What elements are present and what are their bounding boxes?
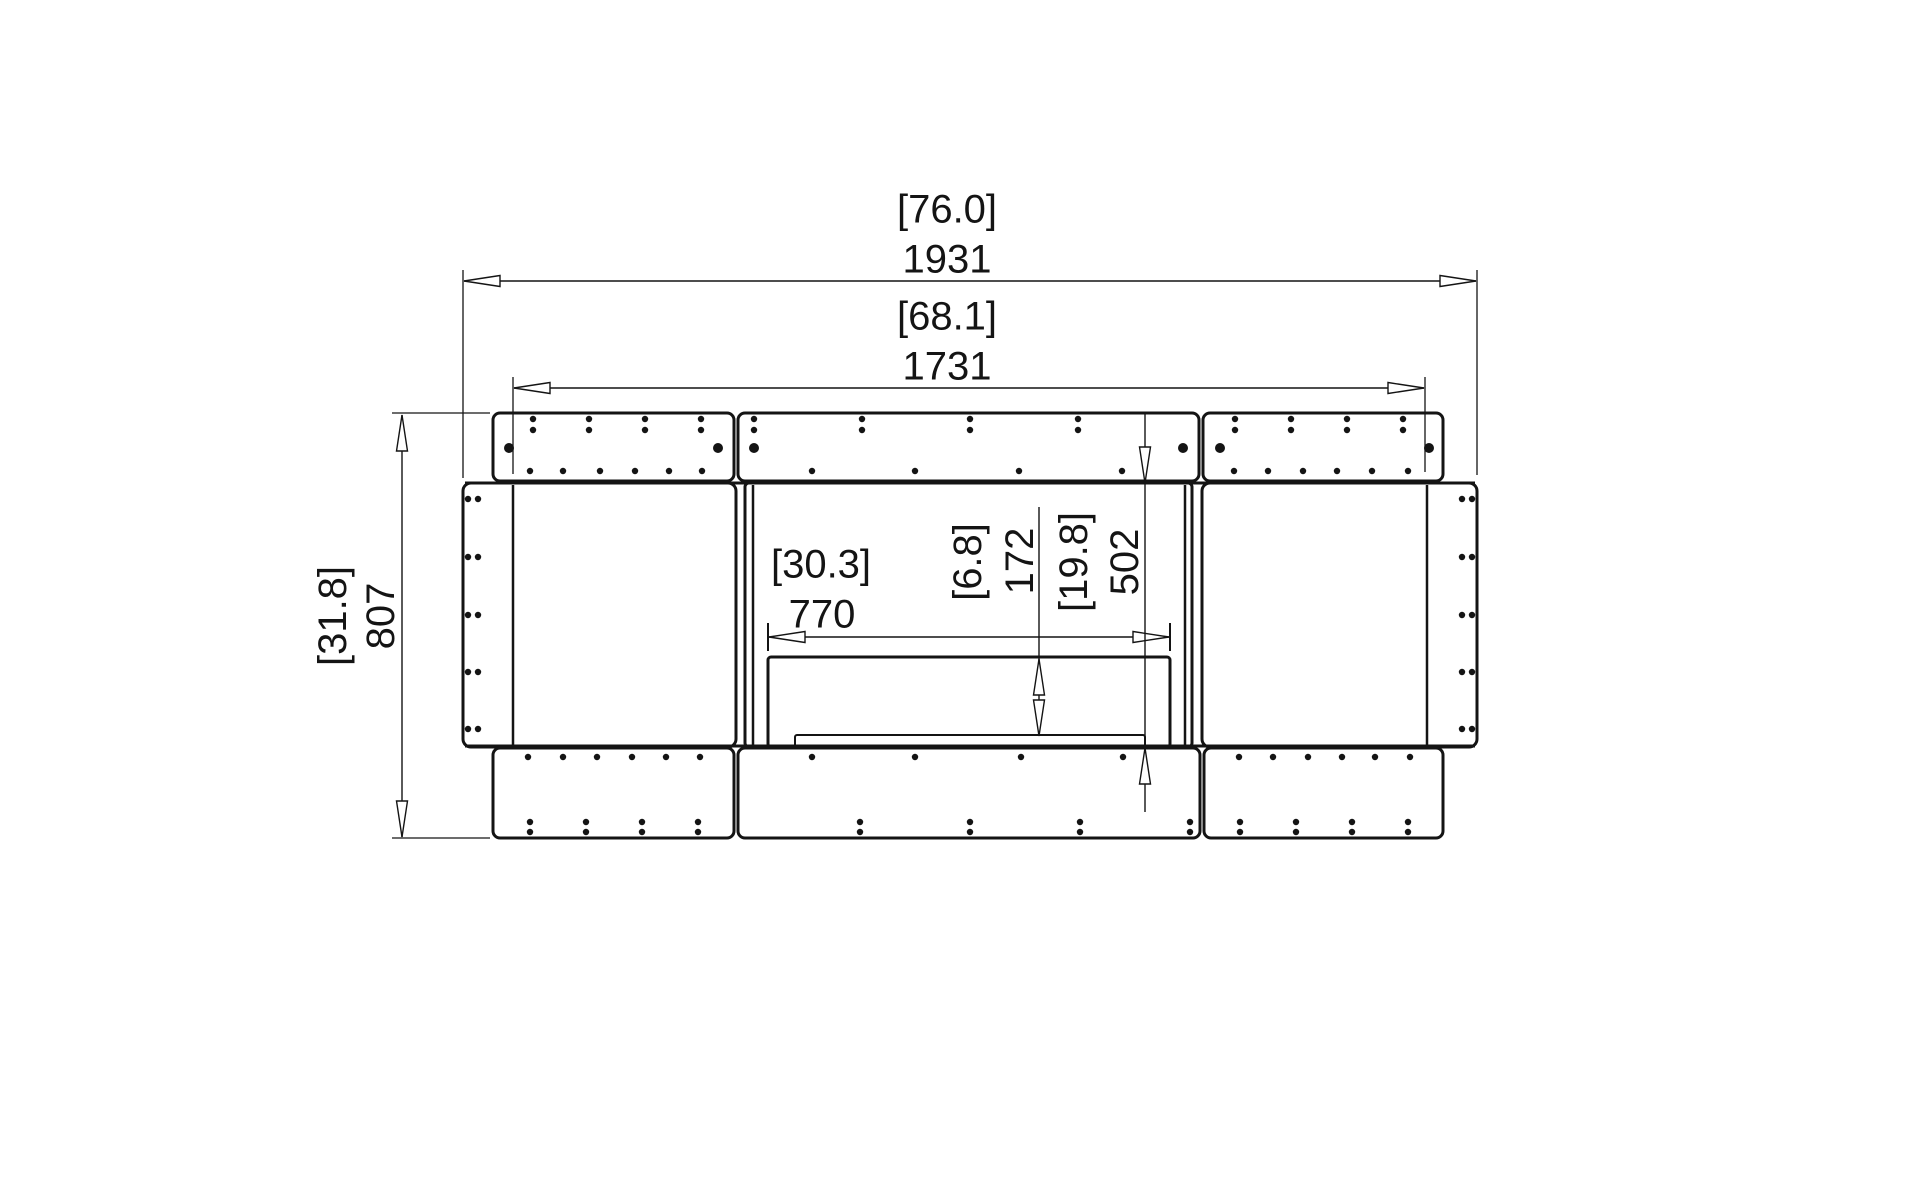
top-strip-bottom-row-dot (1119, 468, 1125, 474)
top-strip-screw-pairs-dot (586, 427, 592, 433)
top-panel-center (738, 413, 1199, 481)
base-strip-screw-pairs-dot (583, 829, 589, 835)
top-strip-bottom-row-dot (666, 468, 672, 474)
left-stile-screw-pairs-dot (465, 554, 471, 560)
burner-box (768, 657, 1170, 747)
base-strip-top-row-dot (1236, 754, 1242, 760)
base-strip-screw-pairs-dot (1077, 819, 1083, 825)
dim-overall-width-arrow-right-icon (1440, 276, 1476, 287)
top-strip-bottom-row-dot (1231, 468, 1237, 474)
top-strip-screw-pairs-dot (642, 416, 648, 422)
base-strip-screw-pairs-dot (639, 829, 645, 835)
left-stile-screw-pairs-dot (475, 612, 481, 618)
base-strip-screw-pairs-dot (967, 819, 973, 825)
base-strip-top-row-dot (629, 754, 635, 760)
base-strip-top-row-dot (1270, 754, 1276, 760)
top-strip-screw-pairs-dot (859, 416, 865, 422)
top-strip-screw-pairs-dot (698, 416, 704, 422)
top-strip-large-screws-dot (1178, 443, 1188, 453)
base-strip-screw-pairs-dot (1187, 829, 1193, 835)
left-stile-screw-pairs-dot (475, 554, 481, 560)
right-stile-screw-pairs-dot (1469, 496, 1475, 502)
base-strip-screw-pairs-dot (695, 819, 701, 825)
base-strip-screw-pairs-dot (1293, 819, 1299, 825)
right-stile-screw-pairs-dot (1469, 726, 1475, 732)
base-strip-screw-pairs-dot (1237, 819, 1243, 825)
base-strip-top-row-dot (560, 754, 566, 760)
dim-overall-height-arrow-down-icon (397, 801, 408, 837)
top-strip-screw-pairs-dot (1232, 427, 1238, 433)
top-strip-screw-pairs-dot (698, 427, 704, 433)
base-strip-screw-pairs-dot (1349, 829, 1355, 835)
base-strip-screw-pairs-dot (695, 829, 701, 835)
cabinet-left (463, 483, 736, 747)
base-strip-screw-pairs-dot (1077, 829, 1083, 835)
top-strip-bottom-row-dot (632, 468, 638, 474)
base-strip-top-row-dot (525, 754, 531, 760)
dim-overall-height-arrow-up-icon (397, 415, 408, 451)
base-strip-top-row-dot (697, 754, 703, 760)
top-strip-screw-pairs-dot (642, 427, 648, 433)
top-strip-screw-pairs-dot (1344, 416, 1350, 422)
top-strip-bottom-row-dot (1334, 468, 1340, 474)
right-stile-screw-pairs-dot (1469, 612, 1475, 618)
base-strip-top-row-dot (1339, 754, 1345, 760)
left-stile-screw-pairs-dot (465, 496, 471, 502)
base-strip-screw-pairs-dot (639, 819, 645, 825)
base-strip-screw-pairs-dot (1405, 829, 1411, 835)
top-strip-screw-pairs-dot (1075, 427, 1081, 433)
base-strip-screw-pairs-dot (857, 829, 863, 835)
dim-top-panel-width-arrow-right-icon (1388, 383, 1424, 394)
base-strip-screw-pairs-dot (583, 819, 589, 825)
top-strip-screw-pairs-dot (1288, 416, 1294, 422)
right-stile-screw-pairs-dot (1469, 669, 1475, 675)
right-stile-screw-pairs-dot (1459, 612, 1465, 618)
right-stile-screw-pairs-dot (1459, 496, 1465, 502)
top-strip-screw-pairs-dot (967, 416, 973, 422)
top-strip-bottom-row-dot (560, 468, 566, 474)
base-strip-screw-pairs-dot (1405, 819, 1411, 825)
top-strip-screw-pairs-dot (967, 427, 973, 433)
top-strip-bottom-row-dot (1300, 468, 1306, 474)
top-strip-bottom-row-dot (1405, 468, 1411, 474)
left-stile-screw-pairs-dot (475, 669, 481, 675)
top-strip-screw-pairs-dot (1075, 416, 1081, 422)
top-strip-bottom-row-dot (1016, 468, 1022, 474)
top-strip-bottom-row-dot (527, 468, 533, 474)
top-strip-screw-pairs-dot (1400, 416, 1406, 422)
top-strip-bottom-row-dot (1265, 468, 1271, 474)
base-strip-screw-pairs-dot (857, 819, 863, 825)
top-strip-large-screws-dot (713, 443, 723, 453)
dim-overall-width-arrow-left-icon (464, 276, 500, 287)
base-strip-top-row-dot (809, 754, 815, 760)
left-stile-screw-pairs-dot (475, 496, 481, 502)
right-stile-screw-pairs-dot (1469, 554, 1475, 560)
top-strip-large-screws-dot (749, 443, 759, 453)
top-strip-screw-pairs-dot (530, 427, 536, 433)
left-stile-screw-pairs-dot (465, 669, 471, 675)
top-strip-bottom-row-dot (597, 468, 603, 474)
left-stile-screw-pairs-dot (475, 726, 481, 732)
cabinet-right (1202, 483, 1477, 747)
top-strip-bottom-row-dot (699, 468, 705, 474)
base-strip-screw-pairs-dot (1349, 819, 1355, 825)
top-strip-screw-pairs-dot (859, 427, 865, 433)
technical-drawing-page: [76.0]1931[68.1]1731[31.8]807[30.3]770[6… (0, 0, 1920, 1187)
base-strip-screw-pairs-dot (1293, 829, 1299, 835)
top-strip-screw-pairs-dot (751, 416, 757, 422)
right-stile-screw-pairs-dot (1459, 726, 1465, 732)
top-strip-screw-pairs-dot (530, 416, 536, 422)
top-strip-bottom-row-dot (1369, 468, 1375, 474)
base-strip-top-row-dot (663, 754, 669, 760)
top-strip-screw-pairs-dot (586, 416, 592, 422)
base-strip-screw-pairs-dot (527, 819, 533, 825)
base-strip-screw-pairs-dot (967, 829, 973, 835)
top-strip-screw-pairs-dot (1232, 416, 1238, 422)
fireplace-elevation-drawing (0, 0, 1920, 1187)
base-strip-top-row-dot (1018, 754, 1024, 760)
base-strip-top-row-dot (912, 754, 918, 760)
base-strip-screw-pairs-dot (527, 829, 533, 835)
right-stile-screw-pairs-dot (1459, 669, 1465, 675)
base-strip-top-row-dot (1372, 754, 1378, 760)
dim-top-panel-width-arrow-left-icon (514, 383, 550, 394)
right-stile-screw-pairs-dot (1459, 554, 1465, 560)
base-strip-screw-pairs-dot (1187, 819, 1193, 825)
top-strip-bottom-row-dot (912, 468, 918, 474)
top-strip-screw-pairs-dot (1344, 427, 1350, 433)
left-stile-screw-pairs-dot (465, 726, 471, 732)
base-strip-top-row-dot (594, 754, 600, 760)
top-strip-screw-pairs-dot (1400, 427, 1406, 433)
base-strip-top-row-dot (1407, 754, 1413, 760)
top-strip-large-screws-dot (1215, 443, 1225, 453)
top-strip-bottom-row-dot (809, 468, 815, 474)
left-stile-screw-pairs-dot (465, 612, 471, 618)
base-strip-top-row-dot (1305, 754, 1311, 760)
top-strip-screw-pairs-dot (751, 427, 757, 433)
base-strip-top-row-dot (1120, 754, 1126, 760)
base-strip-screw-pairs-dot (1237, 829, 1243, 835)
top-strip-screw-pairs-dot (1288, 427, 1294, 433)
